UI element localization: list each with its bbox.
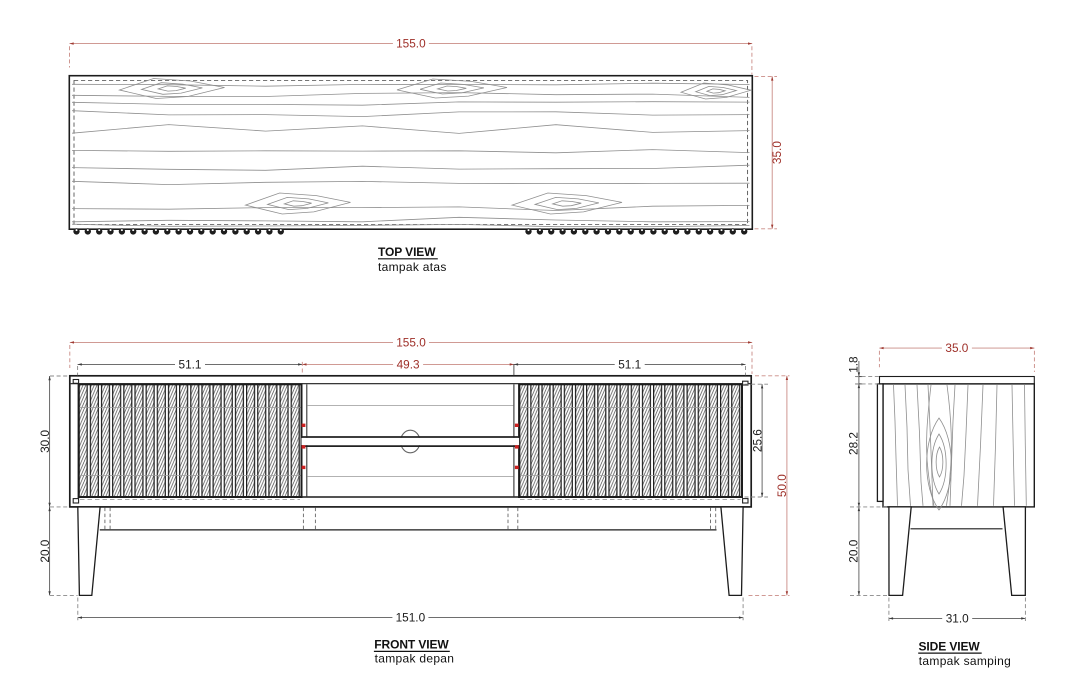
svg-text:TOP VIEW: TOP VIEW xyxy=(378,245,436,259)
svg-text:1.8: 1.8 xyxy=(847,356,861,373)
svg-text:tampak depan: tampak depan xyxy=(375,651,455,665)
svg-text:51.1: 51.1 xyxy=(179,357,202,371)
svg-text:20.0: 20.0 xyxy=(847,539,861,562)
svg-text:30.0: 30.0 xyxy=(38,429,52,452)
svg-text:31.0: 31.0 xyxy=(946,611,969,625)
svg-text:28.2: 28.2 xyxy=(847,432,861,455)
svg-text:35.0: 35.0 xyxy=(945,341,968,355)
svg-text:tampak atas: tampak atas xyxy=(378,260,447,274)
svg-text:50.0: 50.0 xyxy=(775,474,789,497)
svg-text:151.0: 151.0 xyxy=(396,611,426,625)
svg-text:20.0: 20.0 xyxy=(38,539,52,562)
svg-text:155.0: 155.0 xyxy=(396,335,426,349)
svg-text:155.0: 155.0 xyxy=(396,37,426,51)
svg-text:25.6: 25.6 xyxy=(751,429,765,452)
svg-text:tampak samping: tampak samping xyxy=(919,654,1011,668)
svg-text:SIDE VIEW: SIDE VIEW xyxy=(919,639,981,653)
svg-text:FRONT VIEW: FRONT VIEW xyxy=(374,638,449,652)
svg-text:51.1: 51.1 xyxy=(618,357,641,371)
svg-text:35.0: 35.0 xyxy=(770,141,784,164)
svg-text:49.3: 49.3 xyxy=(397,357,420,371)
